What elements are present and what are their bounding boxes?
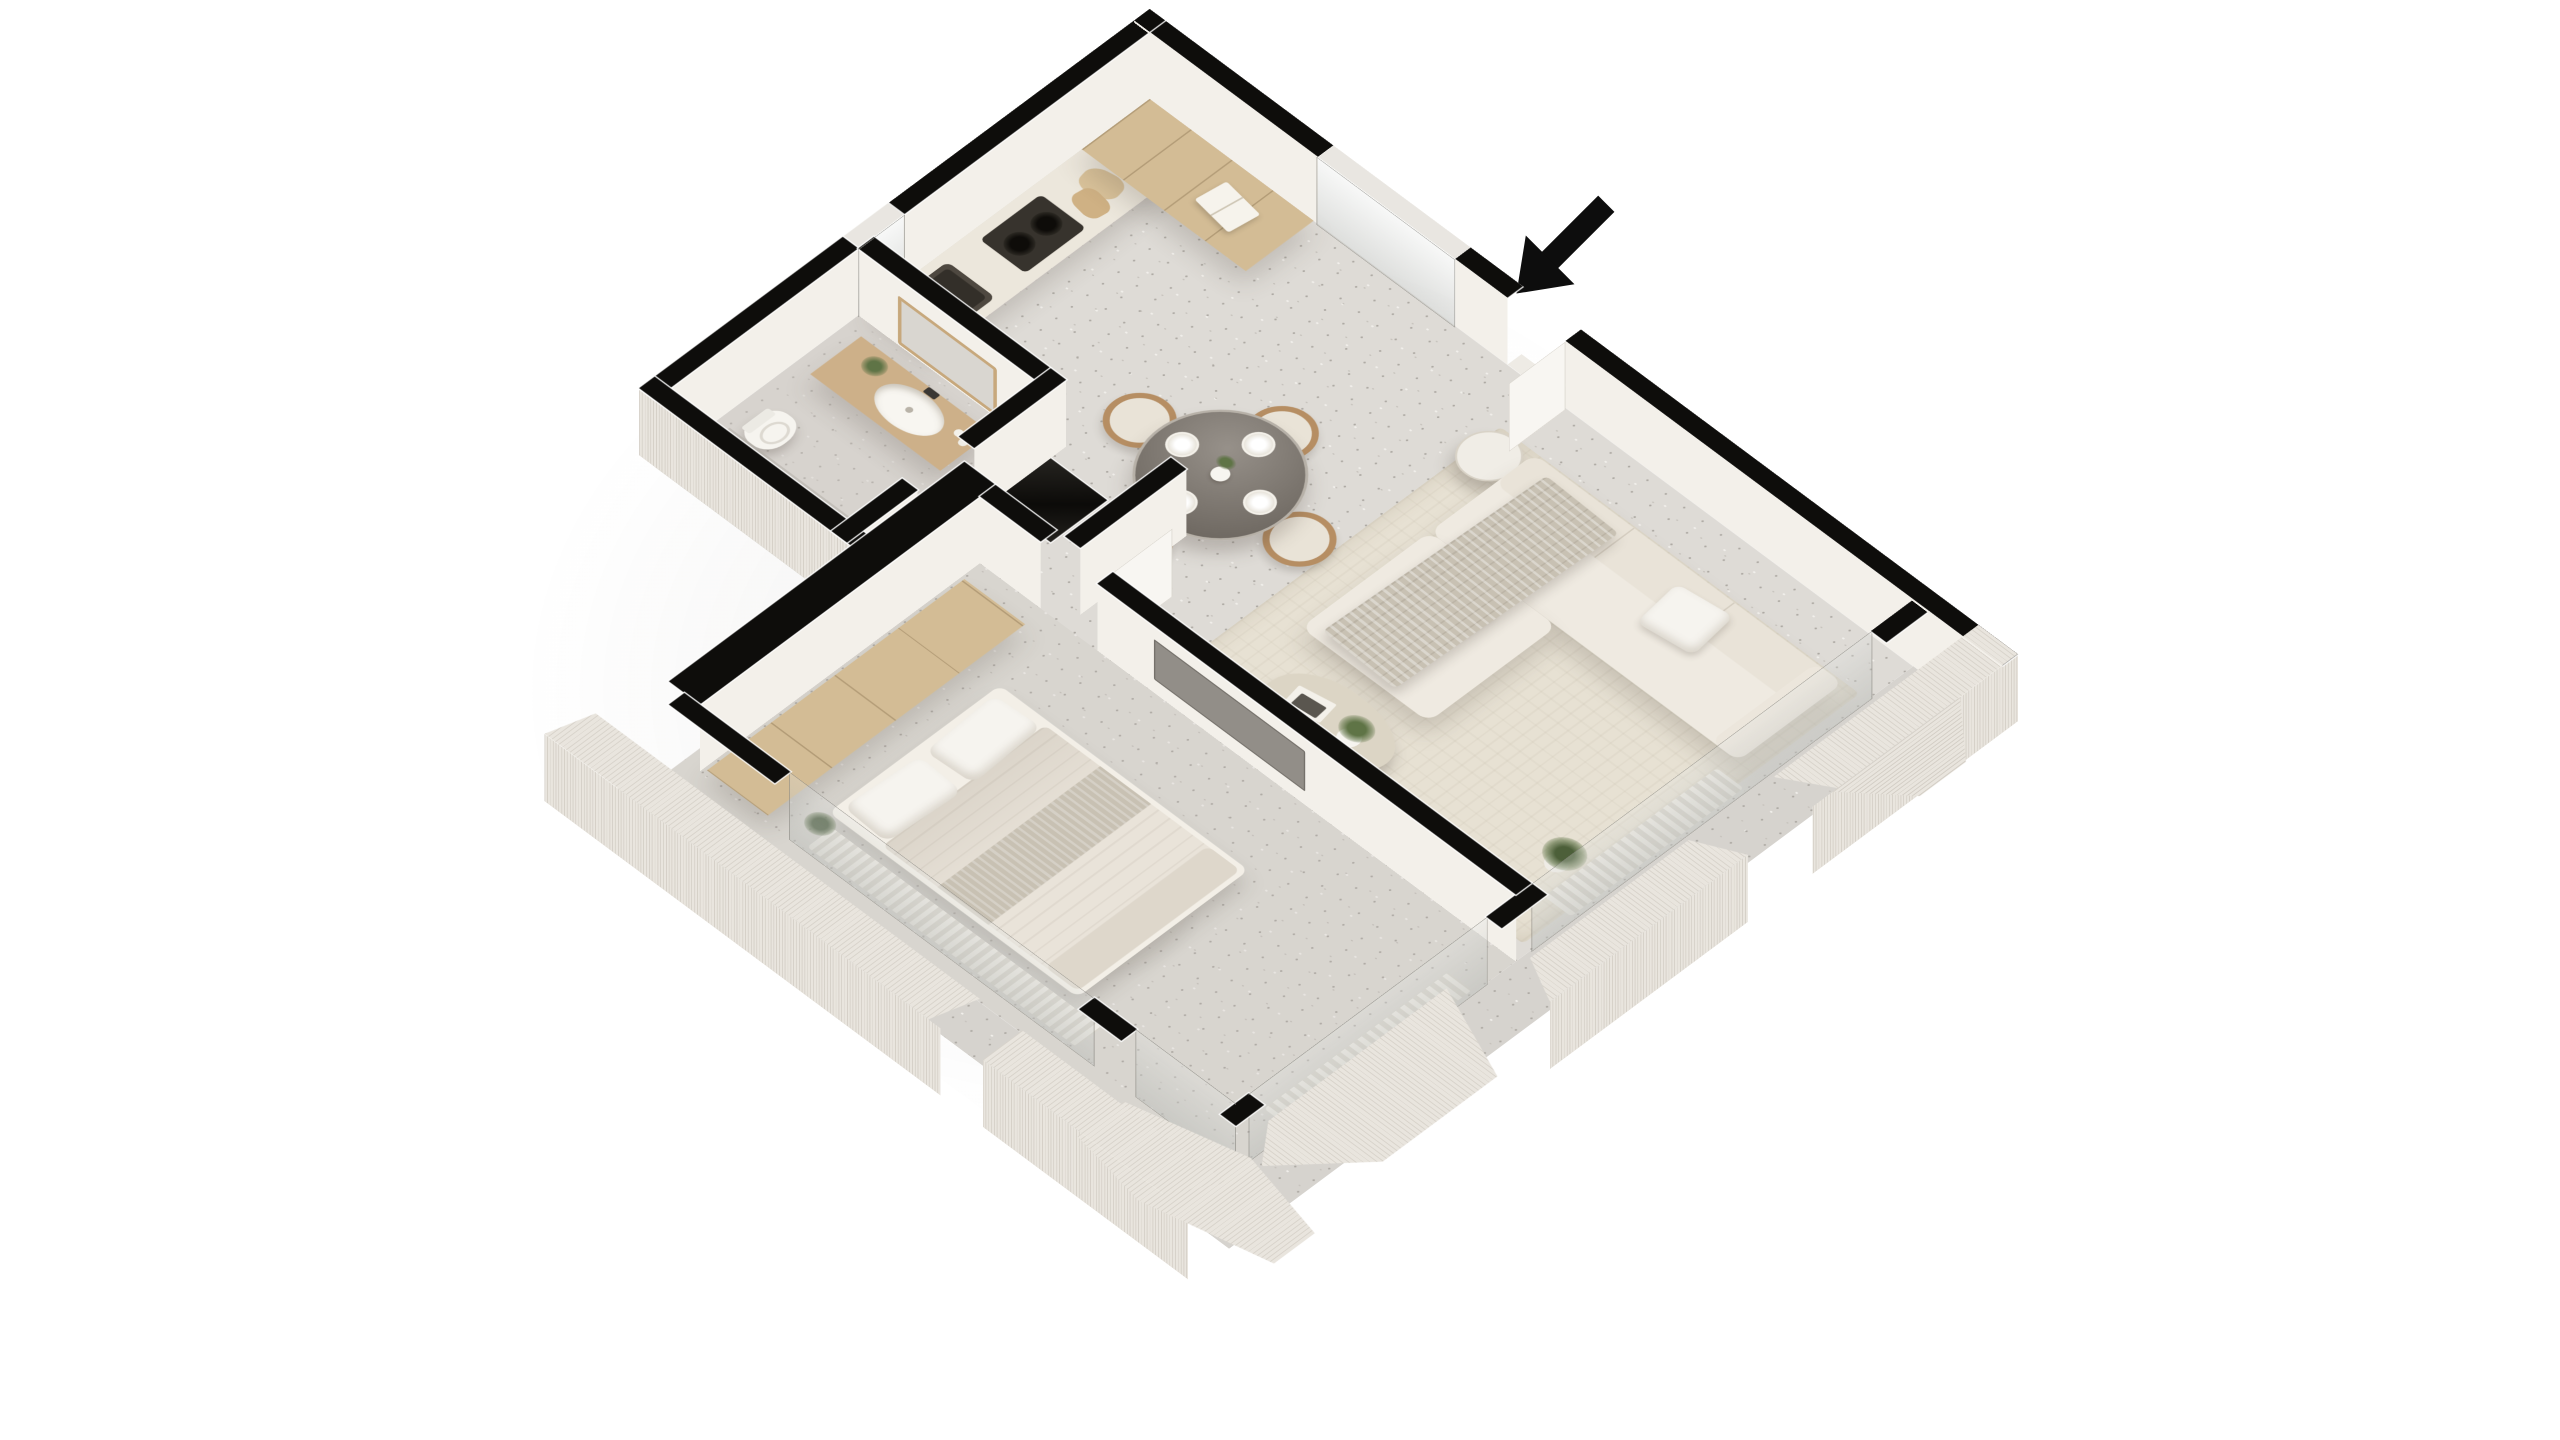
faucet — [913, 276, 930, 289]
toiletries — [952, 428, 966, 439]
apartment-plan — [457, 99, 1914, 1181]
basin-drain — [904, 406, 915, 414]
place-setting — [1158, 427, 1206, 463]
cookbook — [1195, 181, 1261, 232]
isometric-scene — [457, 99, 1914, 1181]
place-setting — [1236, 484, 1284, 520]
vanity-plant — [855, 352, 893, 380]
place-setting — [1157, 484, 1205, 520]
floor-plan-canvas — [0, 0, 2560, 1440]
place-setting — [1234, 427, 1282, 463]
